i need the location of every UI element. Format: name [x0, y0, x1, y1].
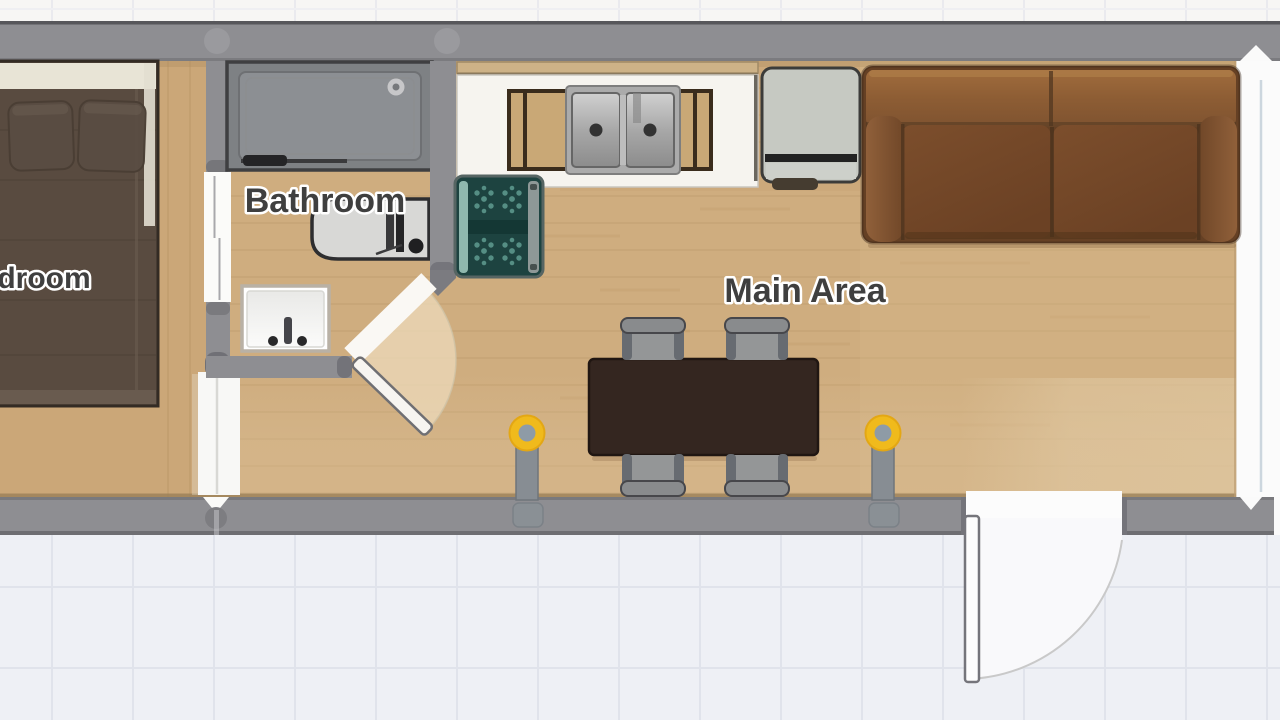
svg-text:Bathroom: Bathroom	[245, 182, 406, 220]
svg-text:Main Area: Main Area	[724, 272, 886, 310]
svg-text:Bedroom: Bedroom	[0, 262, 91, 295]
